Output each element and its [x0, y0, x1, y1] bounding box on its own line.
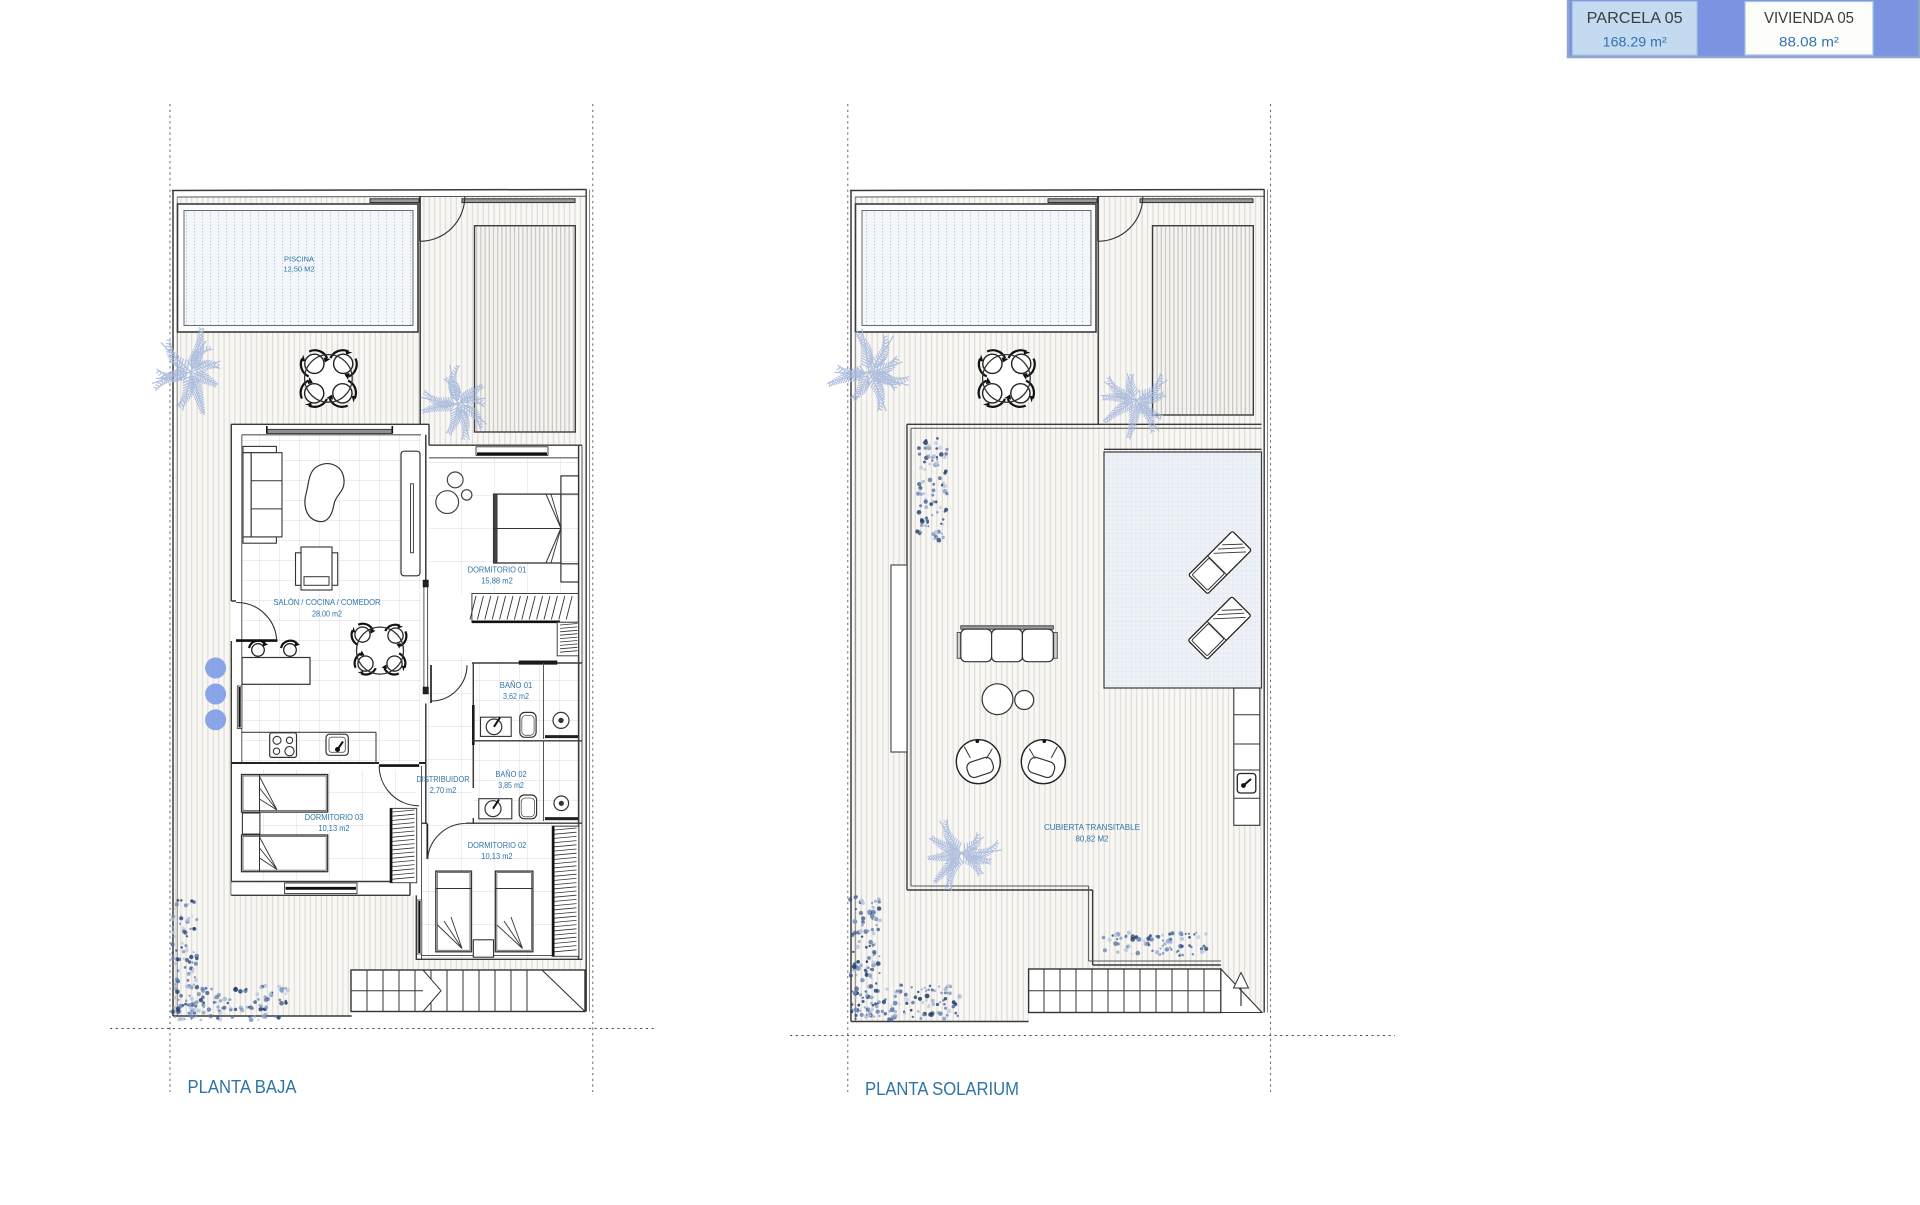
svg-text:PISCINA: PISCINA	[284, 255, 315, 264]
svg-text:2,70 m2: 2,70 m2	[430, 785, 457, 795]
svg-text:10,13 m2: 10,13 m2	[318, 823, 349, 833]
svg-text:15,88 m2: 15,88 m2	[481, 576, 513, 586]
svg-text:VIVIENDA 05: VIVIENDA 05	[1764, 10, 1854, 27]
svg-text:88.08 m²: 88.08 m²	[1779, 34, 1839, 50]
svg-text:DORMITORIO 01: DORMITORIO 01	[468, 565, 527, 575]
svg-text:28,00 m2: 28,00 m2	[312, 609, 342, 619]
svg-text:BAÑO 01: BAÑO 01	[500, 680, 533, 690]
svg-text:3,85 m2: 3,85 m2	[498, 780, 524, 790]
svg-text:168.29 m²: 168.29 m²	[1603, 34, 1667, 50]
svg-text:12,50 M2: 12,50 M2	[284, 265, 315, 274]
svg-text:PLANTA BAJA: PLANTA BAJA	[188, 1077, 297, 1097]
svg-text:PARCELA 05: PARCELA 05	[1587, 10, 1683, 27]
svg-text:DISTRIBUIDOR: DISTRIBUIDOR	[416, 774, 469, 784]
svg-text:PLANTA SOLARIUM: PLANTA SOLARIUM	[865, 1079, 1019, 1099]
svg-text:BAÑO 02: BAÑO 02	[495, 769, 526, 779]
svg-text:80,82 M2: 80,82 M2	[1076, 834, 1109, 844]
svg-text:CUBIERTA TRANSITABLE: CUBIERTA TRANSITABLE	[1044, 822, 1140, 832]
svg-text:10,13 m2: 10,13 m2	[481, 851, 512, 861]
svg-text:DORMITORIO 02: DORMITORIO 02	[468, 840, 527, 850]
svg-text:3,62 m2: 3,62 m2	[503, 691, 529, 701]
svg-text:DORMITORIO 03: DORMITORIO 03	[305, 812, 364, 822]
svg-text:SALÓN / COCINA / COMEDOR: SALÓN / COCINA / COMEDOR	[274, 597, 381, 607]
